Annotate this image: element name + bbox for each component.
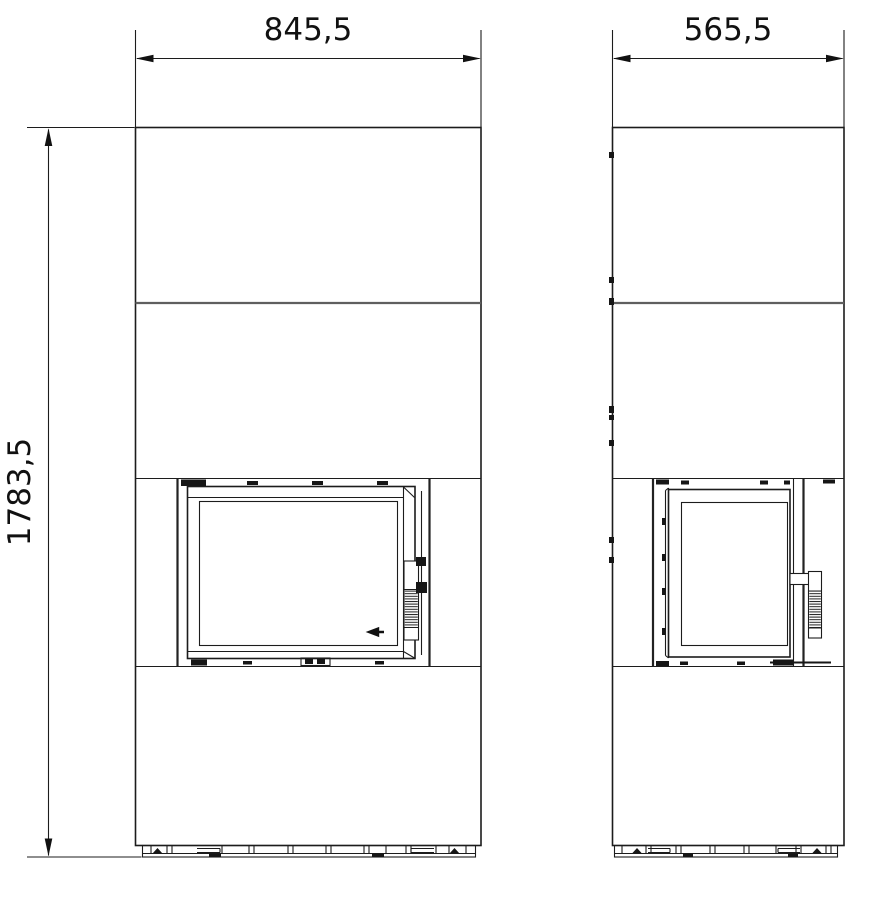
side-body-outline bbox=[613, 128, 845, 846]
door-arrow-icon bbox=[369, 629, 384, 636]
front-base-brackets bbox=[197, 849, 434, 853]
side-width-value: 565,5 bbox=[684, 12, 773, 48]
side-base-brackets bbox=[648, 849, 800, 853]
side-handle-knurl bbox=[809, 592, 821, 628]
height-arrow-top bbox=[45, 128, 53, 146]
dimension-side-width: 565,5 bbox=[613, 12, 845, 127]
front-base-strip bbox=[143, 846, 476, 858]
side-handle-stub bbox=[790, 574, 809, 585]
side-door-frame bbox=[669, 490, 791, 658]
side-top-clips bbox=[656, 480, 835, 485]
front-bottom-clips bbox=[191, 660, 384, 666]
side-width-arrow-left bbox=[613, 55, 631, 62]
side-view bbox=[612, 128, 845, 858]
front-bottom-latch bbox=[305, 659, 325, 664]
overall-height-value: 1783,5 bbox=[2, 438, 38, 546]
side-width-arrow-right bbox=[826, 55, 844, 62]
drawing-canvas: 845,5 565,5 1783,5 bbox=[0, 0, 896, 900]
side-door-glass bbox=[682, 503, 788, 646]
side-base-strip bbox=[615, 846, 838, 858]
front-width-value: 845,5 bbox=[264, 12, 353, 48]
front-handle-knurl bbox=[405, 591, 418, 628]
front-top-clips bbox=[181, 480, 388, 487]
front-width-arrow-left bbox=[136, 55, 154, 62]
dimension-front-width: 845,5 bbox=[136, 12, 482, 127]
front-view bbox=[136, 128, 482, 858]
front-width-arrow-right bbox=[463, 55, 481, 62]
dimension-overall-height: 1783,5 bbox=[2, 128, 142, 858]
front-door-glass bbox=[200, 502, 398, 646]
fireplace-elevation-drawing: 845,5 565,5 1783,5 bbox=[0, 0, 896, 900]
height-arrow-bottom bbox=[45, 839, 53, 857]
